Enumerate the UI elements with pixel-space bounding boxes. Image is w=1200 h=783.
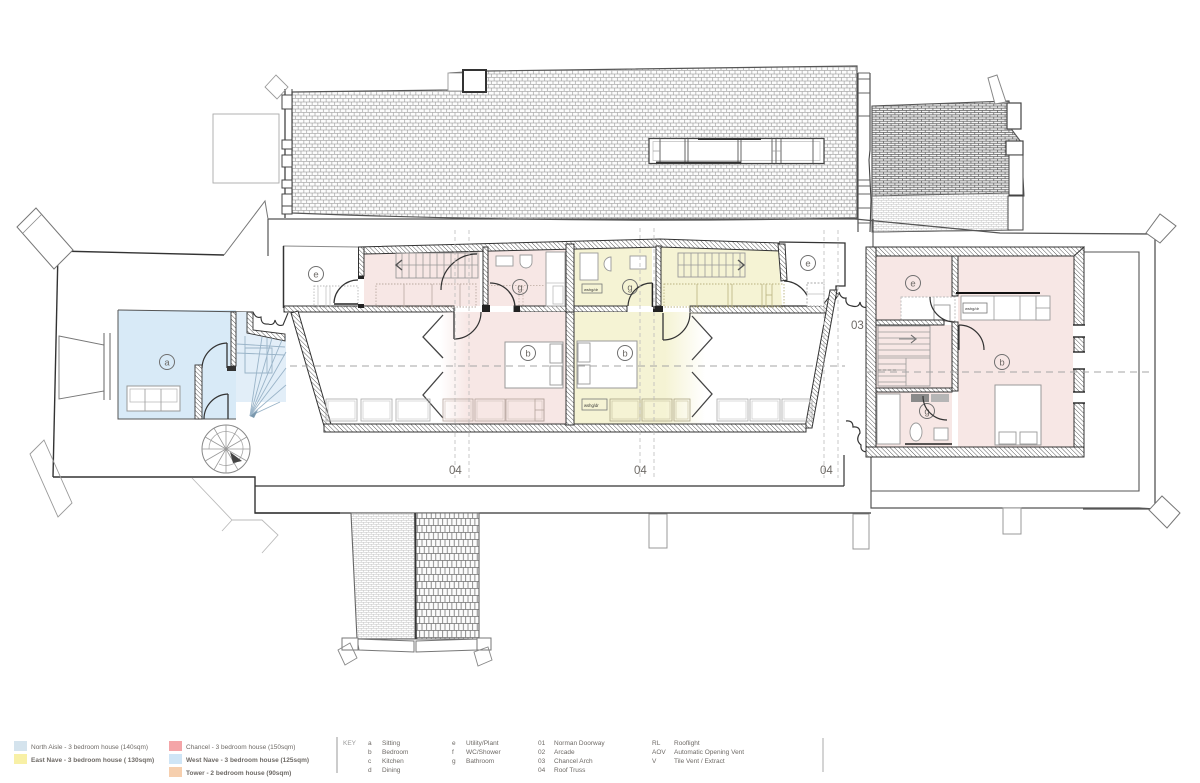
svg-text:b: b	[368, 749, 372, 756]
svg-text:g: g	[517, 282, 522, 293]
svg-text:Sitting: Sitting	[382, 740, 400, 747]
svg-text:b: b	[622, 348, 627, 359]
svg-text:Roof Truss: Roof Truss	[554, 767, 586, 774]
svg-text:Bathroom: Bathroom	[466, 758, 494, 765]
svg-text:Tower - 2 bedroom house (90sqm: Tower - 2 bedroom house (90sqm)	[186, 770, 291, 777]
svg-text:g: g	[452, 758, 456, 765]
svg-text:Dining: Dining	[382, 767, 401, 774]
svg-text:e: e	[452, 740, 456, 747]
svg-text:wshg/dr: wshg/dr	[584, 403, 599, 408]
svg-text:Bedroom: Bedroom	[382, 749, 408, 756]
svg-text:Tile Vent / Extract: Tile Vent / Extract	[674, 758, 725, 765]
svg-text:b: b	[999, 357, 1004, 368]
svg-text:RL: RL	[652, 740, 661, 747]
svg-text:Kitchen: Kitchen	[382, 758, 404, 765]
svg-text:Norman Doorway: Norman Doorway	[554, 740, 605, 747]
svg-text:03: 03	[851, 320, 864, 332]
svg-text:f: f	[452, 749, 454, 756]
svg-text:Rooflight: Rooflight	[674, 740, 700, 747]
svg-text:Chancel Arch: Chancel Arch	[554, 758, 593, 765]
svg-text:V: V	[652, 758, 657, 765]
svg-text:wshg/dr: wshg/dr	[584, 287, 599, 292]
svg-text:WC/Shower: WC/Shower	[466, 749, 502, 756]
svg-text:Chancel - 3 bedroom house (150: Chancel - 3 bedroom house (150sqm)	[186, 744, 295, 751]
svg-text:03: 03	[538, 758, 546, 765]
svg-text:04: 04	[449, 465, 462, 477]
svg-text:b: b	[525, 348, 530, 359]
svg-text:g: g	[627, 282, 632, 293]
svg-text:a: a	[164, 357, 170, 368]
svg-text:Utility/Plant: Utility/Plant	[466, 740, 499, 747]
svg-text:d: d	[368, 767, 372, 774]
svg-text:KEY: KEY	[343, 740, 357, 747]
svg-text:AOV: AOV	[652, 749, 666, 756]
svg-text:Arcade: Arcade	[554, 749, 575, 756]
svg-text:04: 04	[820, 465, 833, 477]
svg-text:01: 01	[538, 740, 546, 747]
svg-text:04: 04	[538, 767, 546, 774]
svg-text:e: e	[805, 258, 810, 269]
svg-text:02: 02	[538, 749, 546, 756]
svg-text:West Nave - 3 bedroom house (1: West Nave - 3 bedroom house (125sqm)	[186, 757, 309, 764]
svg-text:North Aisle - 3 bedroom house: North Aisle - 3 bedroom house (140sqm)	[31, 744, 148, 751]
svg-text:Automatic Opening Vent: Automatic Opening Vent	[674, 749, 744, 756]
svg-text:a: a	[368, 740, 372, 747]
svg-text:East Nave - 3 bedroom house (: East Nave - 3 bedroom house ( 130sqm)	[31, 757, 154, 764]
svg-text:e: e	[313, 269, 318, 280]
svg-text:e: e	[910, 278, 915, 289]
svg-text:wshg/dr: wshg/dr	[965, 306, 980, 311]
svg-text:04: 04	[634, 465, 647, 477]
